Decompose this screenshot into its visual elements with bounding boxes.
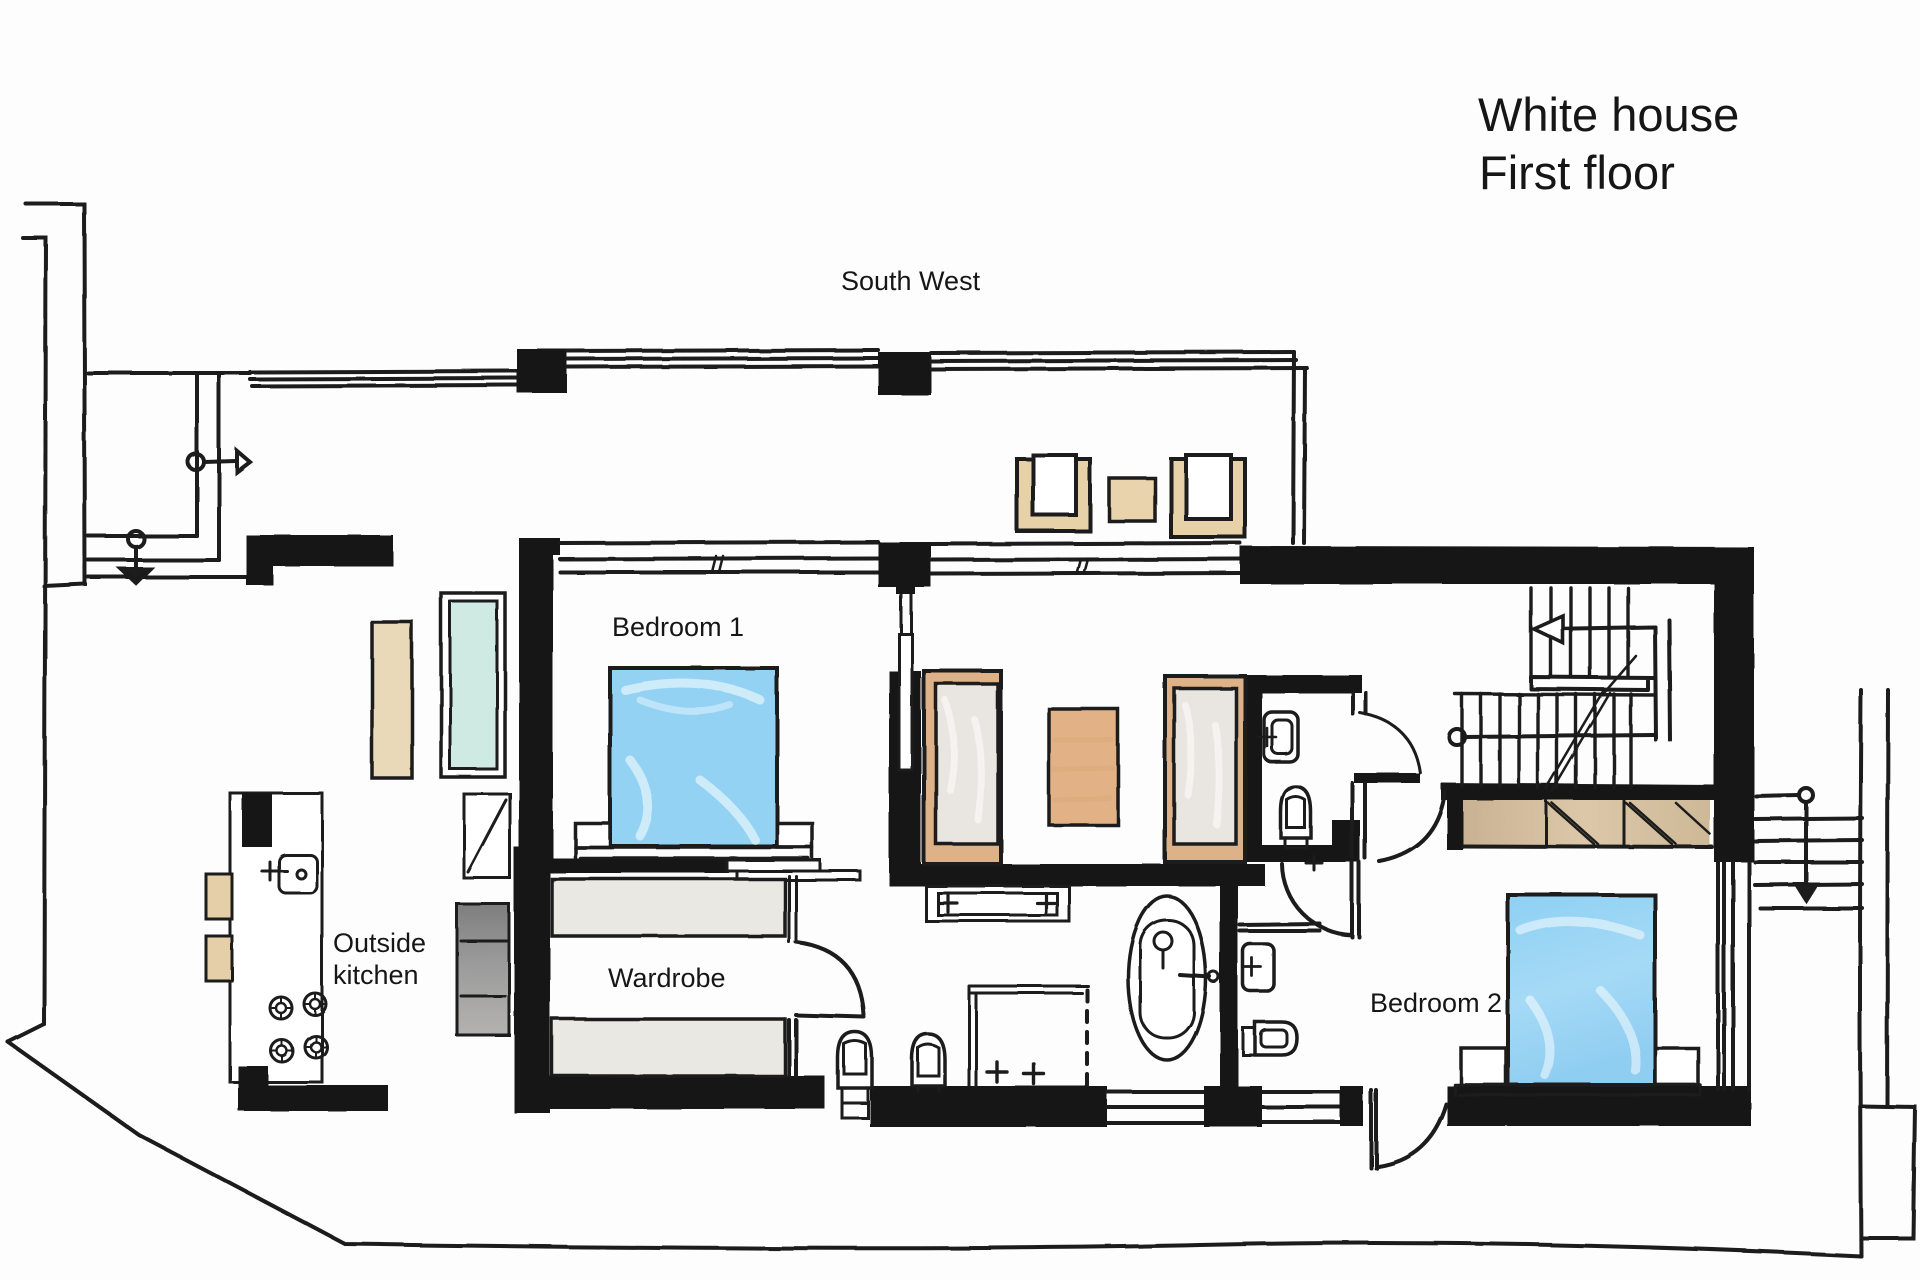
svg-text:South West: South West bbox=[841, 266, 981, 296]
svg-text:Bedroom 2: Bedroom 2 bbox=[1370, 988, 1502, 1018]
svg-text:First floor: First floor bbox=[1479, 146, 1675, 199]
svg-text:kitchen: kitchen bbox=[333, 960, 419, 990]
svg-text:Outside: Outside bbox=[333, 928, 426, 958]
svg-text:Bedroom 1: Bedroom 1 bbox=[612, 612, 744, 642]
svg-text:Wardrobe: Wardrobe bbox=[608, 963, 726, 993]
svg-text:White house: White house bbox=[1478, 88, 1739, 141]
